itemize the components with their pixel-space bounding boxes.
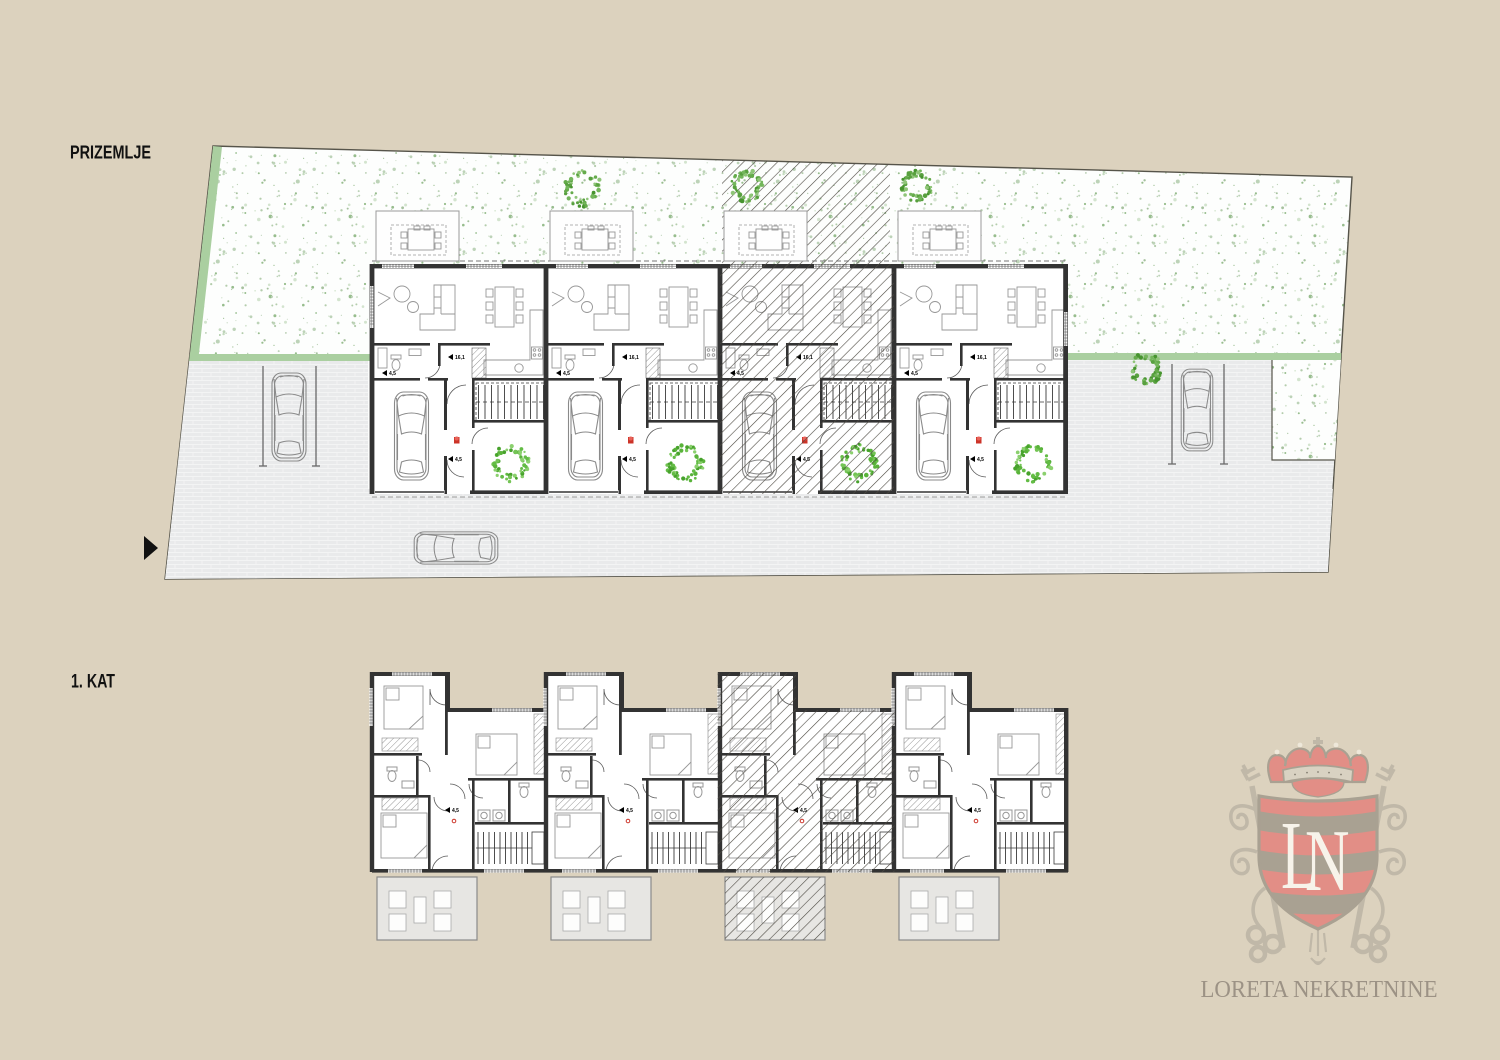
svg-text:LORETA NEKRETNINE: LORETA NEKRETNINE — [1201, 977, 1438, 1003]
svg-text:4,5: 4,5 — [626, 808, 633, 814]
svg-text:1. KAT: 1. KAT — [71, 671, 115, 693]
svg-text:16,1: 16,1 — [629, 355, 639, 361]
svg-text:4,5: 4,5 — [911, 371, 918, 377]
svg-text:PRIZEMLJE: PRIZEMLJE — [70, 142, 151, 163]
svg-text:N: N — [1305, 812, 1349, 909]
svg-text:16,1: 16,1 — [455, 355, 465, 361]
svg-text:4,5: 4,5 — [977, 457, 984, 463]
svg-text:4,5: 4,5 — [452, 808, 459, 814]
svg-text:4,5: 4,5 — [455, 457, 462, 463]
svg-text:4,5: 4,5 — [389, 371, 396, 377]
svg-text:4,5: 4,5 — [974, 808, 981, 814]
svg-text:4,5: 4,5 — [629, 457, 636, 463]
svg-text:16,1: 16,1 — [977, 355, 987, 361]
svg-text:4,5: 4,5 — [563, 371, 570, 377]
